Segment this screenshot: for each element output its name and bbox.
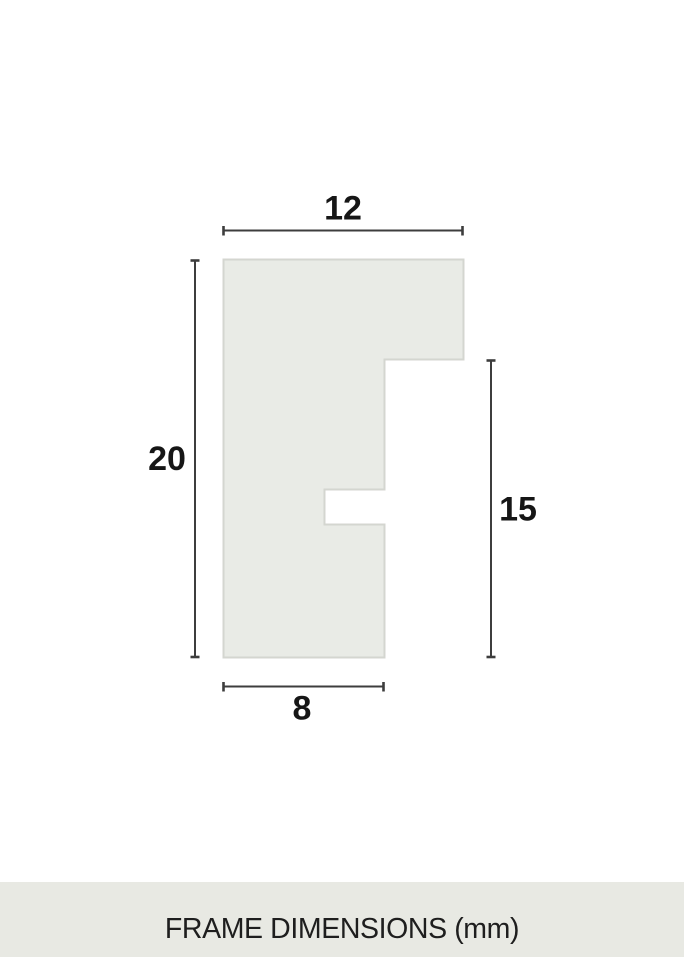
svg-text:12: 12 (324, 190, 362, 228)
svg-text:8: 8 (293, 690, 312, 728)
svg-text:15: 15 (499, 491, 537, 529)
svg-text:20: 20 (148, 440, 186, 478)
